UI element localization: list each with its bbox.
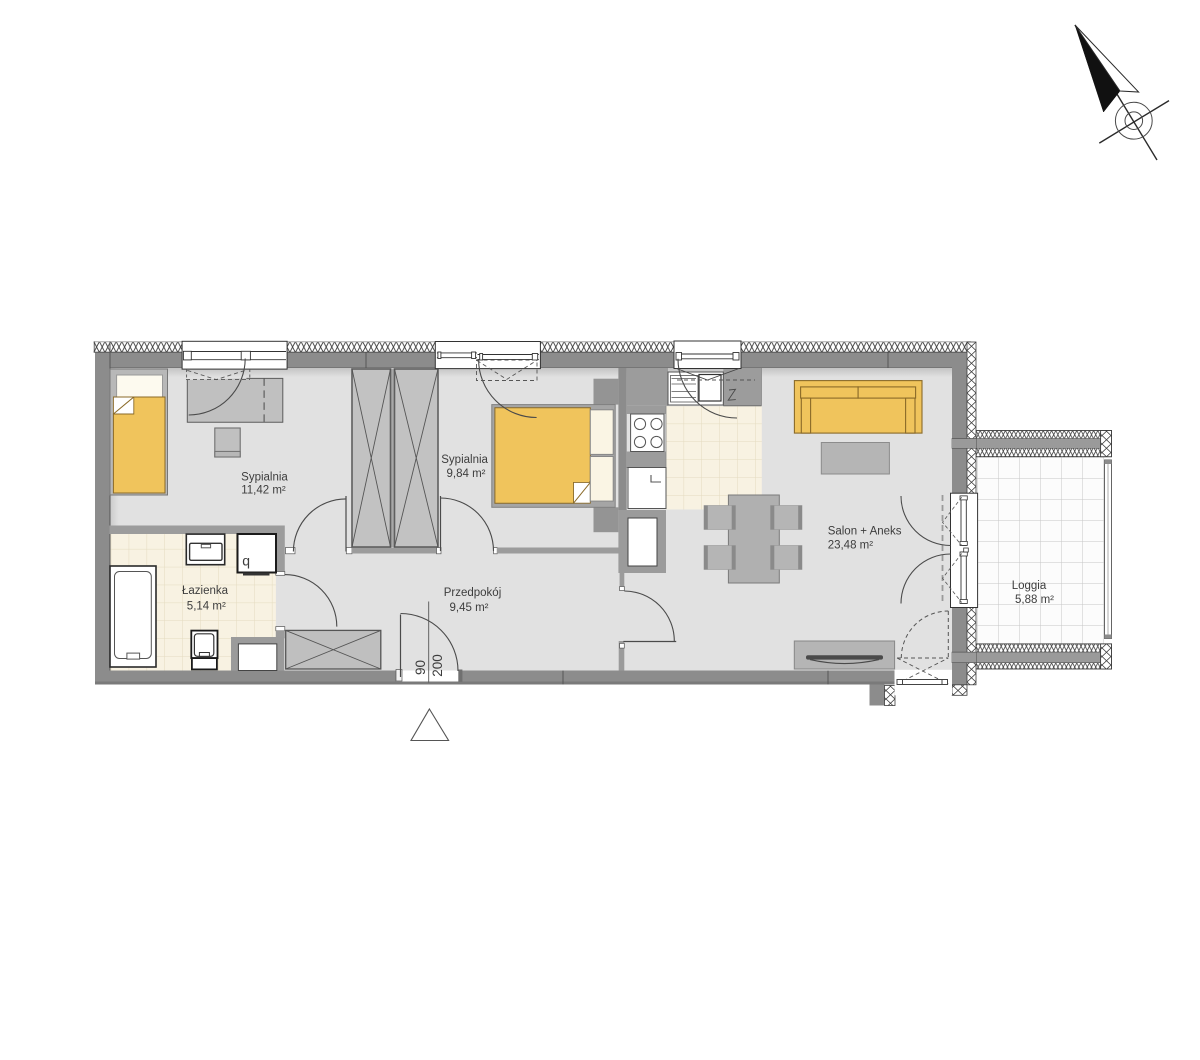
svg-text:Loggia: Loggia xyxy=(1012,580,1047,592)
svg-text:5,88 m²: 5,88 m² xyxy=(1015,594,1054,606)
svg-text:Łazienka: Łazienka xyxy=(182,585,229,597)
svg-text:Sypialnia: Sypialnia xyxy=(441,454,488,466)
svg-text:5,14 m²: 5,14 m² xyxy=(187,601,226,613)
svg-text:9,84 m²: 9,84 m² xyxy=(447,468,486,480)
svg-text:Sypialnia: Sypialnia xyxy=(241,472,288,484)
svg-text:11,42 m²: 11,42 m² xyxy=(241,485,286,497)
svg-text:q: q xyxy=(242,553,250,569)
svg-text:Salon + Aneks: Salon + Aneks xyxy=(828,525,902,537)
svg-text:23,48 m²: 23,48 m² xyxy=(828,540,874,552)
svg-text:200: 200 xyxy=(430,654,445,677)
svg-text:Przedpokój: Przedpokój xyxy=(444,587,502,599)
svg-text:9,45 m²: 9,45 m² xyxy=(450,602,489,614)
svg-text:90: 90 xyxy=(413,660,428,675)
